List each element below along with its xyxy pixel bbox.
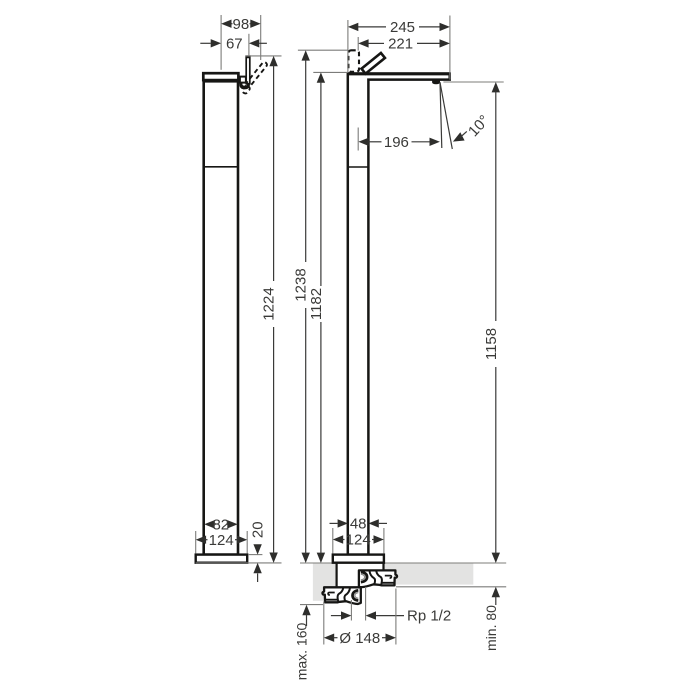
svg-text:124: 124 — [346, 532, 371, 549]
svg-text:1182: 1182 — [308, 288, 325, 320]
svg-text:min. 80: min. 80 — [483, 605, 499, 651]
svg-text:Rp 1/2: Rp 1/2 — [407, 608, 451, 625]
svg-text:Ø 148: Ø 148 — [339, 630, 380, 647]
svg-text:1158: 1158 — [483, 328, 500, 360]
svg-text:20: 20 — [250, 521, 267, 538]
svg-text:124: 124 — [209, 532, 234, 549]
svg-text:48: 48 — [350, 516, 367, 533]
svg-text:max. 160: max. 160 — [294, 622, 310, 680]
svg-text:1224: 1224 — [261, 287, 278, 320]
svg-text:196: 196 — [384, 134, 409, 151]
svg-text:67: 67 — [226, 35, 243, 52]
svg-text:221: 221 — [388, 36, 413, 53]
svg-text:245: 245 — [390, 19, 415, 36]
svg-text:98: 98 — [233, 16, 250, 33]
